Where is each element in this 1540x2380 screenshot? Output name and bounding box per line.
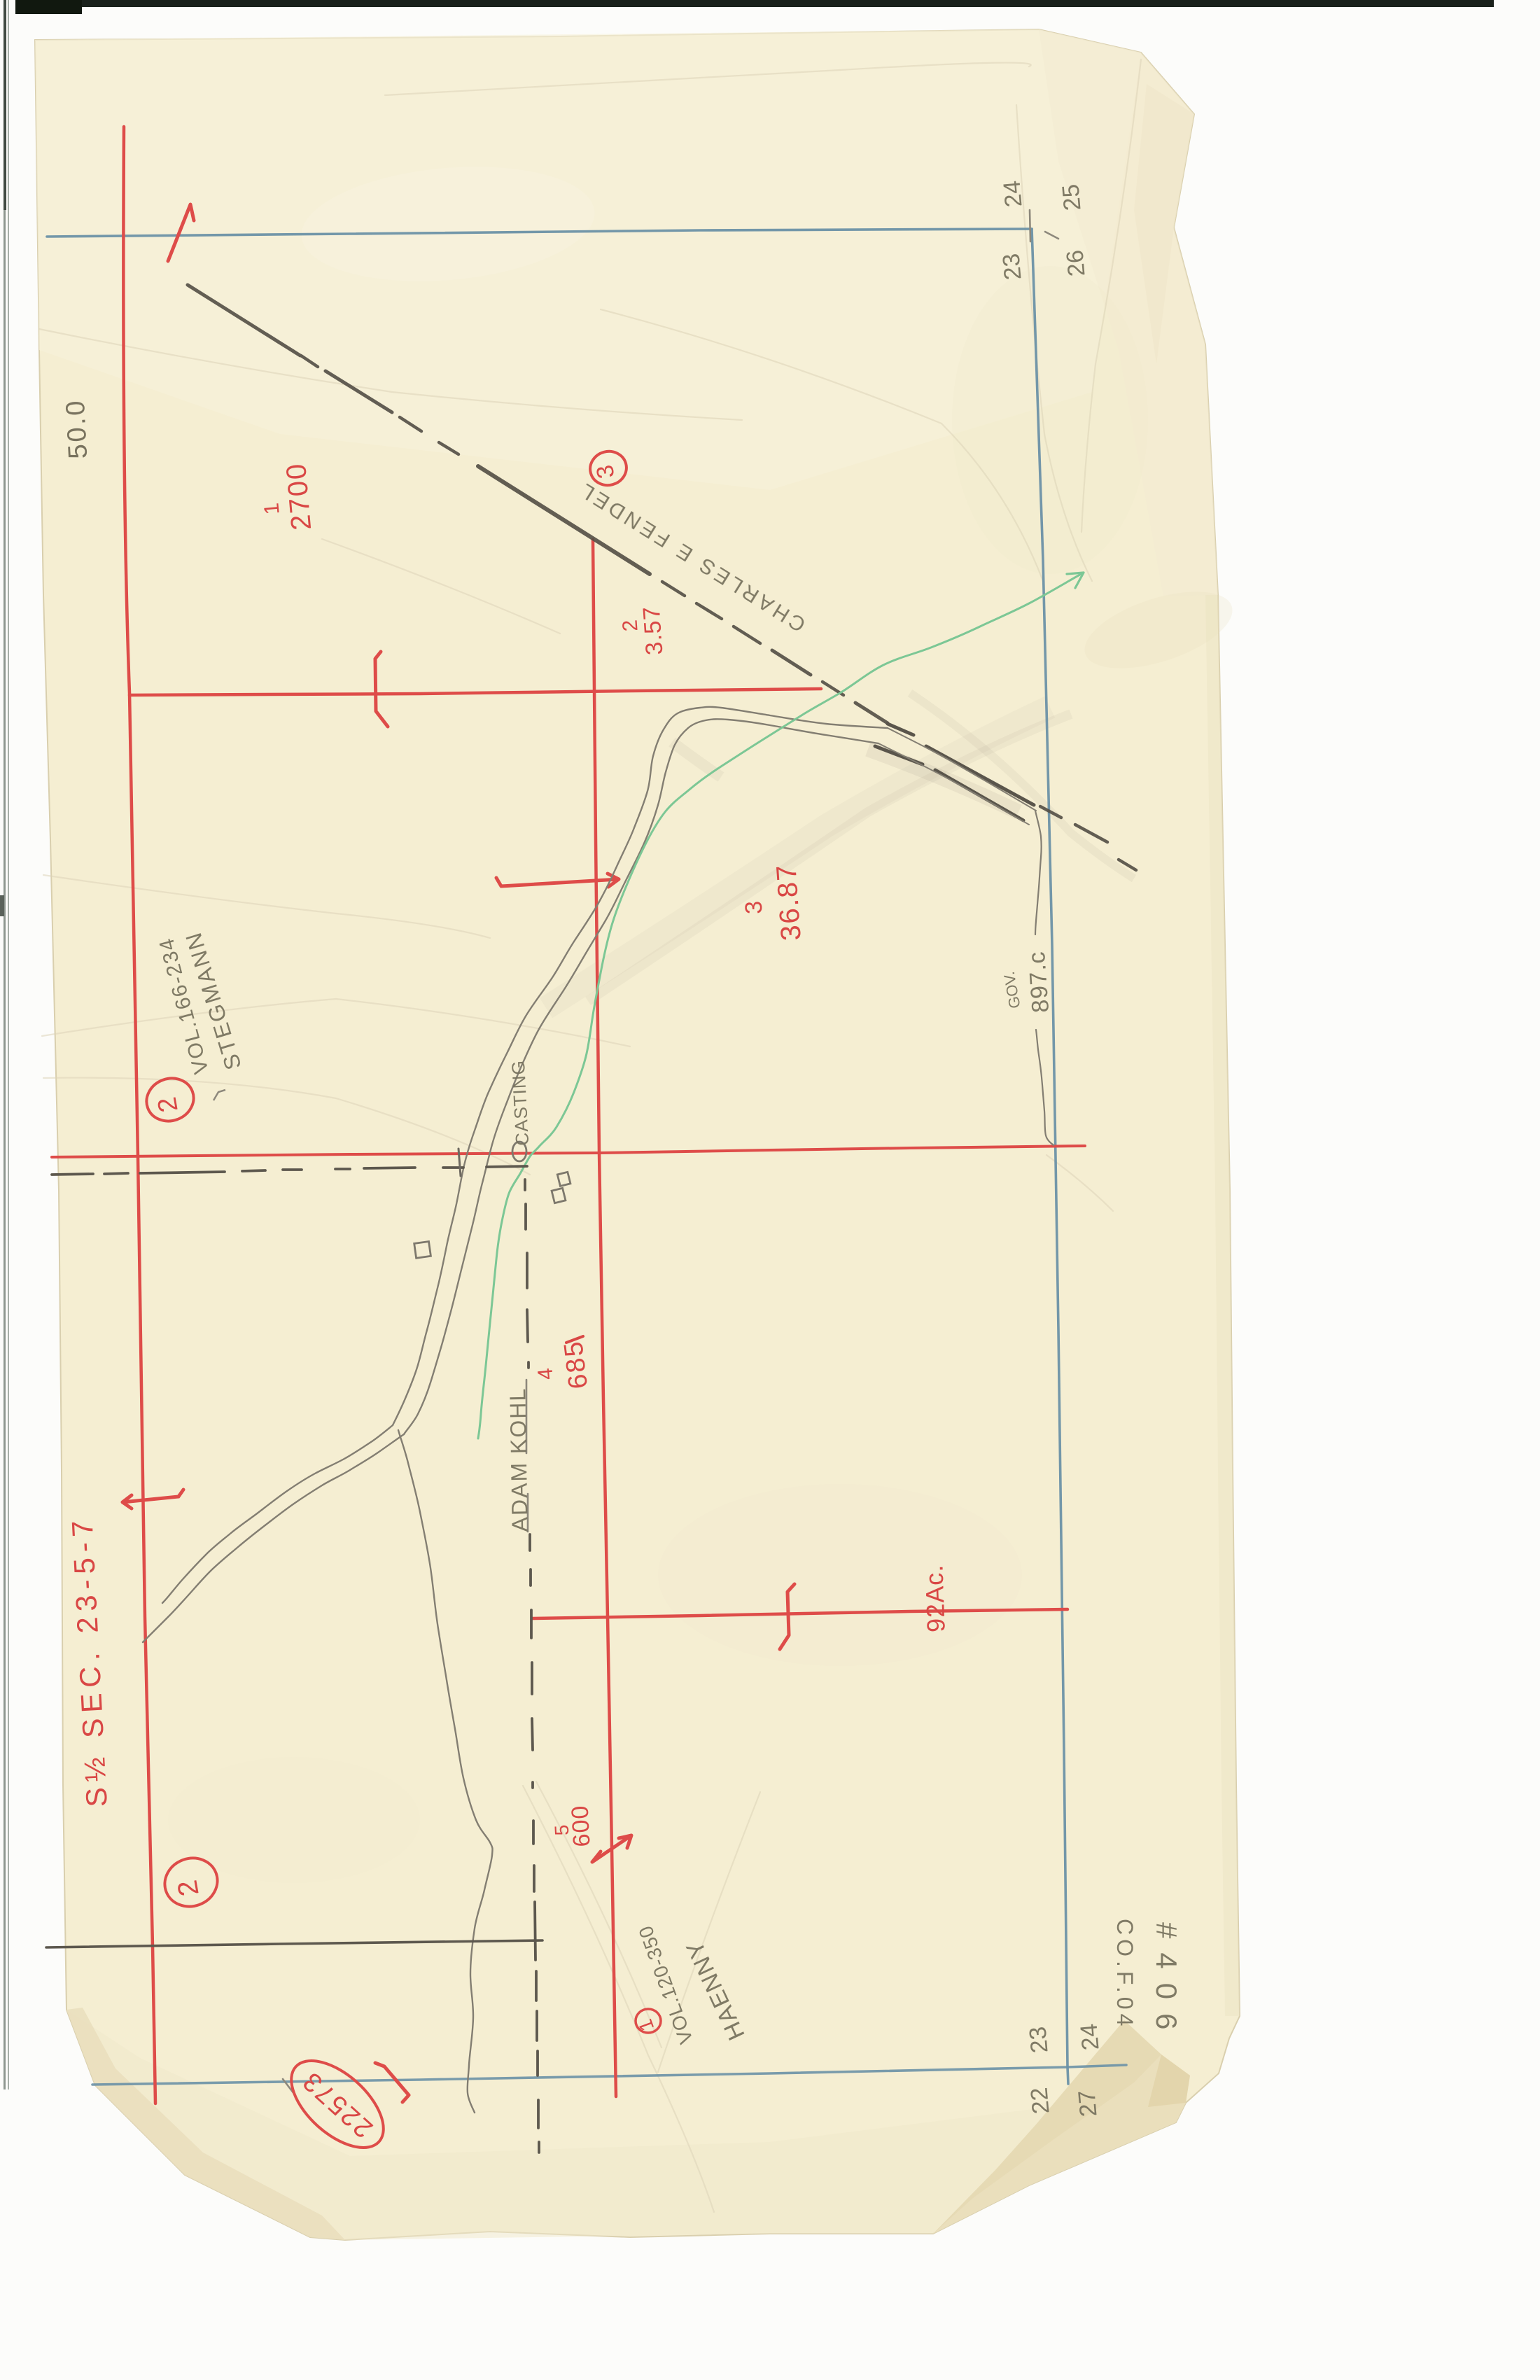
svg-text:50.0: 50.0: [61, 398, 93, 460]
svg-text:600: 600: [566, 1805, 595, 1848]
svg-text:2700: 2700: [281, 461, 317, 531]
svg-text:CO.F.04: CO.F.04: [1112, 1919, 1137, 2030]
svg-text:23: 23: [1024, 2025, 1053, 2054]
svg-text:4: 4: [533, 1367, 557, 1381]
svg-text:92Ac.: 92Ac.: [919, 1564, 950, 1632]
svg-text:#406: #406: [1150, 1922, 1183, 2043]
svg-text:25: 25: [1057, 183, 1086, 211]
svg-text:CASTING: CASTING: [507, 1059, 533, 1146]
svg-text:685: 685: [559, 1338, 594, 1390]
svg-text:3: 3: [741, 900, 768, 914]
svg-text:ADAM KOHL: ADAM KOHL: [505, 1387, 533, 1532]
svg-text:27: 27: [1073, 2089, 1102, 2117]
svg-text:22: 22: [1025, 2086, 1054, 2115]
svg-text:897.c: 897.c: [1023, 950, 1054, 1014]
svg-text:1: 1: [260, 502, 283, 516]
svg-text:36.87: 36.87: [771, 862, 807, 941]
svg-text:24: 24: [1075, 2022, 1104, 2051]
svg-text:26: 26: [1061, 248, 1090, 277]
svg-text:23: 23: [997, 252, 1026, 281]
svg-text:24: 24: [998, 179, 1027, 208]
svg-text:3.57: 3.57: [638, 605, 668, 656]
